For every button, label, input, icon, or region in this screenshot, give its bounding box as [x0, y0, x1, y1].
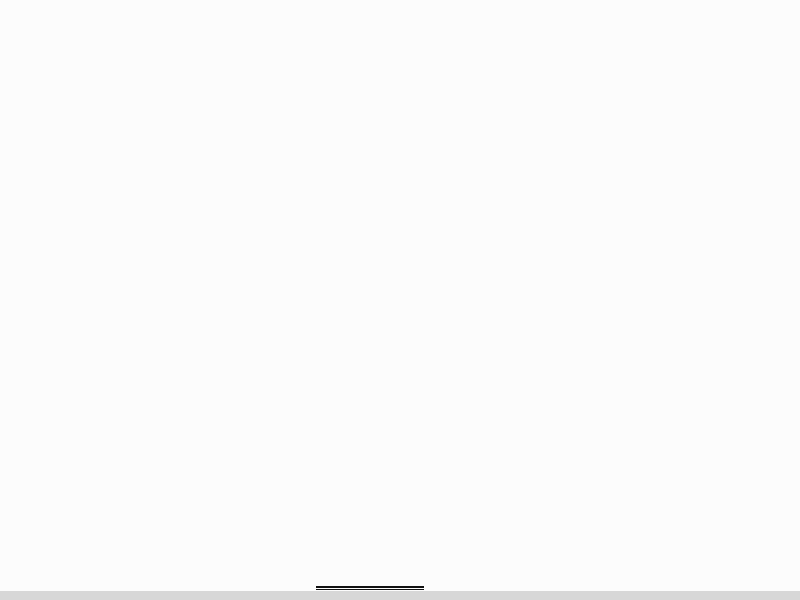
page-bottom-bar	[0, 591, 800, 600]
floor-plan-canvas	[0, 0, 800, 600]
title-underline-thick	[316, 586, 424, 588]
title-underline-thin	[316, 589, 424, 590]
